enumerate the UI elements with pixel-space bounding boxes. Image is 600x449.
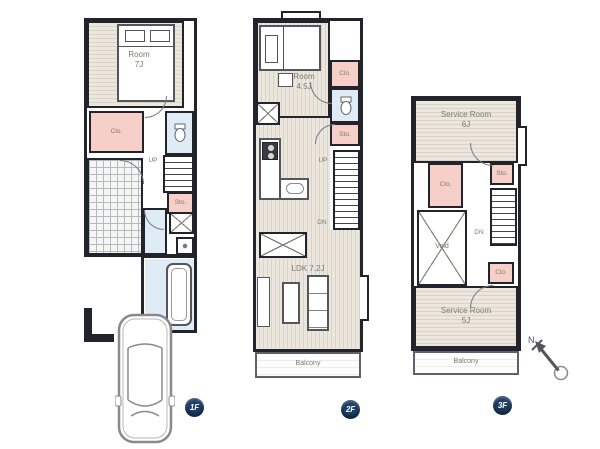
floor2-badge-label: 2F bbox=[346, 405, 355, 414]
washing-machine-icon bbox=[169, 212, 194, 234]
balcony-3f-label: Balcony bbox=[413, 358, 519, 366]
service-room-6j-size: 6J bbox=[433, 120, 499, 130]
ldk-label: LDK 7.2J bbox=[273, 264, 343, 274]
stairs-3f bbox=[490, 188, 517, 246]
service-room-6j-label: Service Room 6J bbox=[433, 110, 499, 129]
pillow-icon bbox=[125, 30, 145, 42]
closet-2f-label: Clo. bbox=[330, 70, 360, 78]
void-label: Void bbox=[417, 243, 467, 251]
sink-1f bbox=[176, 237, 194, 255]
toilet-room-2f bbox=[330, 88, 360, 123]
pillow-icon bbox=[265, 35, 278, 63]
table-icon bbox=[282, 282, 300, 324]
balcony-2f-label: Balcony bbox=[255, 360, 361, 368]
toilet-icon bbox=[173, 123, 187, 143]
floor3-badge-label: 3F bbox=[498, 401, 507, 410]
north-label: N bbox=[528, 335, 535, 345]
floor-2-plan: Room 4.5J Clo. Sto. UP DN LDK 7.2J Balco… bbox=[253, 18, 363, 378]
bed-line bbox=[119, 46, 173, 47]
north-arrow-icon: N bbox=[528, 334, 572, 382]
stairs-up-1f-label: UP bbox=[142, 157, 164, 165]
closet-1f-label: Clo. bbox=[89, 128, 144, 136]
bedroom-7j-size: 7J bbox=[109, 60, 169, 70]
floor3-badge: 3F bbox=[493, 396, 512, 415]
toilet-room-1f bbox=[165, 111, 194, 155]
service-room-6j-name: Service Room bbox=[433, 110, 499, 120]
closet-3f-label: Clo. bbox=[428, 181, 463, 189]
site-corner-mark bbox=[84, 334, 114, 342]
stairs-down-3f-label: DN bbox=[469, 229, 489, 237]
closet2-3f-label: Clo. bbox=[488, 269, 514, 277]
bay-window-3f bbox=[518, 126, 527, 166]
car-icon bbox=[115, 312, 175, 445]
kitchen-sink-icon bbox=[286, 183, 304, 194]
single-bed-icon bbox=[259, 25, 321, 71]
bedroom-4-5j-name: Room bbox=[281, 72, 327, 82]
service-room-5j-label: Service Room 5J bbox=[433, 306, 499, 325]
floor1-badge-label: 1F bbox=[190, 403, 199, 412]
storage-1f-label: Sto. bbox=[167, 199, 194, 207]
stairs-up-2f-label: UP bbox=[313, 157, 333, 165]
stove-icon bbox=[262, 142, 278, 160]
stairs-down-2f-label: DN bbox=[311, 219, 333, 227]
refrigerator-space-icon bbox=[256, 102, 280, 125]
bow-window-2f bbox=[360, 275, 369, 321]
bed-line bbox=[283, 27, 284, 69]
stairs-1f bbox=[163, 155, 194, 193]
storage-3f-label: Sto. bbox=[490, 170, 514, 178]
service-room-6j bbox=[414, 99, 518, 163]
service-room-5j-size: 5J bbox=[433, 316, 499, 326]
bedroom-7j-label: Room 7J bbox=[109, 50, 169, 69]
sofa-shelf-icon bbox=[307, 275, 329, 331]
floor2-badge: 2F bbox=[341, 400, 360, 419]
toilet-icon bbox=[339, 96, 353, 116]
dining-table-icon bbox=[259, 232, 307, 258]
pillow-icon bbox=[150, 30, 170, 42]
floor1-badge: 1F bbox=[185, 398, 204, 417]
floor-1-plan: Room 7J Clo. UP Sto. bbox=[84, 18, 197, 350]
floor-plan-page: { "colors": { "wall": "#23232c", "closet… bbox=[0, 0, 600, 449]
stairs-2f bbox=[333, 150, 360, 230]
floor-3-plan: Service Room 6J Clo. Sto. DN Void Clo. S… bbox=[411, 96, 521, 377]
bedroom-7j-name: Room bbox=[109, 50, 169, 60]
tv-board-icon bbox=[257, 277, 270, 327]
